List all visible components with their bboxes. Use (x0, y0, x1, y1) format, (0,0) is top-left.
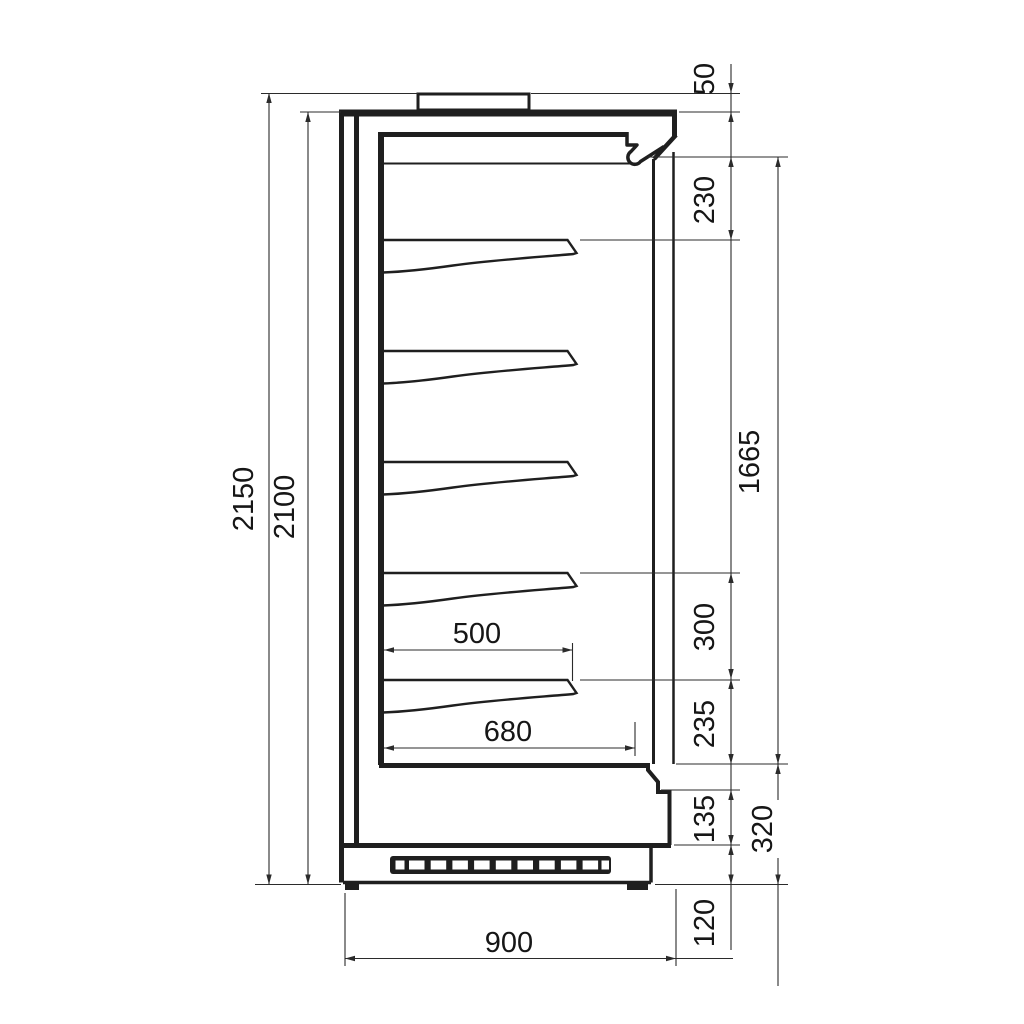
foot-right (627, 883, 648, 890)
cabinet-structure (339, 94, 677, 890)
shelf-4 (383, 573, 577, 606)
technical-drawing-canvas: 2150 2100 50 230 1665 300 235 135 320 12… (0, 0, 1024, 1024)
shelf-5 (383, 680, 577, 713)
dim-label-shelf-depth: 500 (453, 618, 501, 650)
shelf-1 (383, 240, 577, 273)
top-box (418, 94, 529, 110)
dim-label-lower-front-height: 135 (689, 795, 721, 843)
dim-label-canopy-to-first-shelf: 230 (689, 176, 721, 224)
technical-drawing-page: 2150 2100 50 230 1665 300 235 135 320 12… (0, 0, 1024, 1024)
vent-grille (390, 856, 611, 874)
canopy-discharge-curl (627, 132, 664, 164)
shelf-3 (383, 462, 577, 495)
dim-label-last-shelf-to-well: 235 (689, 700, 721, 748)
dim-label-shelf-pitch: 300 (689, 603, 721, 651)
dim-label-plinth-height: 120 (689, 899, 721, 947)
dim-label-display-opening-height: 1665 (734, 430, 766, 495)
foot-left (345, 883, 359, 890)
dim-label-overall-depth: 900 (485, 927, 533, 959)
dim-label-well-depth: 680 (484, 716, 532, 748)
lower-front-step (648, 763, 670, 845)
dim-label-body-height: 2100 (269, 475, 301, 540)
shelf-2 (383, 351, 577, 384)
dim-label-top-box-height: 50 (689, 63, 721, 95)
dim-label-base-section-height: 320 (747, 805, 779, 853)
dim-label-overall-height: 2150 (228, 467, 260, 532)
